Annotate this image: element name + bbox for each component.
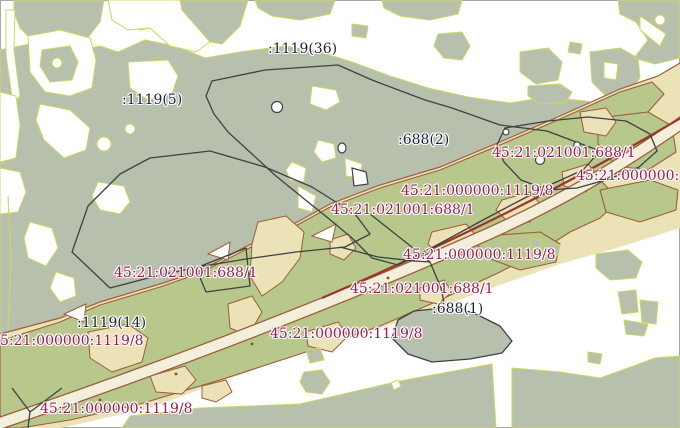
forest-polygon <box>382 0 462 20</box>
forest-polygon <box>300 370 330 394</box>
parcel-label: 45:21:021001:688/1 <box>114 266 258 281</box>
parcel-label: :1119(36) <box>268 42 337 57</box>
forest-polygon <box>618 290 638 314</box>
forest-polygon <box>568 42 582 54</box>
forest-polygon <box>596 250 642 280</box>
parcel-label: 5:21:000000:1119/8 <box>0 334 144 349</box>
map-canvas[interactable]: :1119(36) :1119(5) :688(2) 45:21:021001:… <box>0 0 680 428</box>
parcel-label: 45:21:021001:688/1 <box>331 203 475 218</box>
parcel-label: 45:21:021001:688/1 <box>350 282 494 297</box>
forest-polygon <box>520 48 562 84</box>
forest-polygon <box>640 300 658 324</box>
forest-polygon <box>528 84 572 104</box>
parcel-label: :1119(5) <box>122 93 182 108</box>
forest-polygon <box>306 348 324 363</box>
forest-polygon <box>512 356 680 428</box>
parcel-label: 45:21:000000:1119/8 <box>270 327 422 342</box>
parcel-label: 45:21:000000:1119/8 <box>403 248 555 263</box>
parcel-label: 45:21:000000:1 <box>576 169 680 184</box>
forest-polygon <box>434 32 470 60</box>
parcel-label: :688(2) <box>398 133 449 148</box>
forest-polygon <box>588 352 602 364</box>
parcel-label: 45:21:000000:1119/8 <box>401 184 553 199</box>
parcel-label: :1119(14) <box>77 316 146 331</box>
parcel-label: 45:21:021001:688/1 <box>492 146 636 161</box>
parcel-label: :688(1) <box>432 302 483 317</box>
forest-polygon <box>352 24 368 38</box>
forest-polygon <box>255 0 335 20</box>
parcel-label: 45:21:000000:1119/8 <box>40 402 192 417</box>
